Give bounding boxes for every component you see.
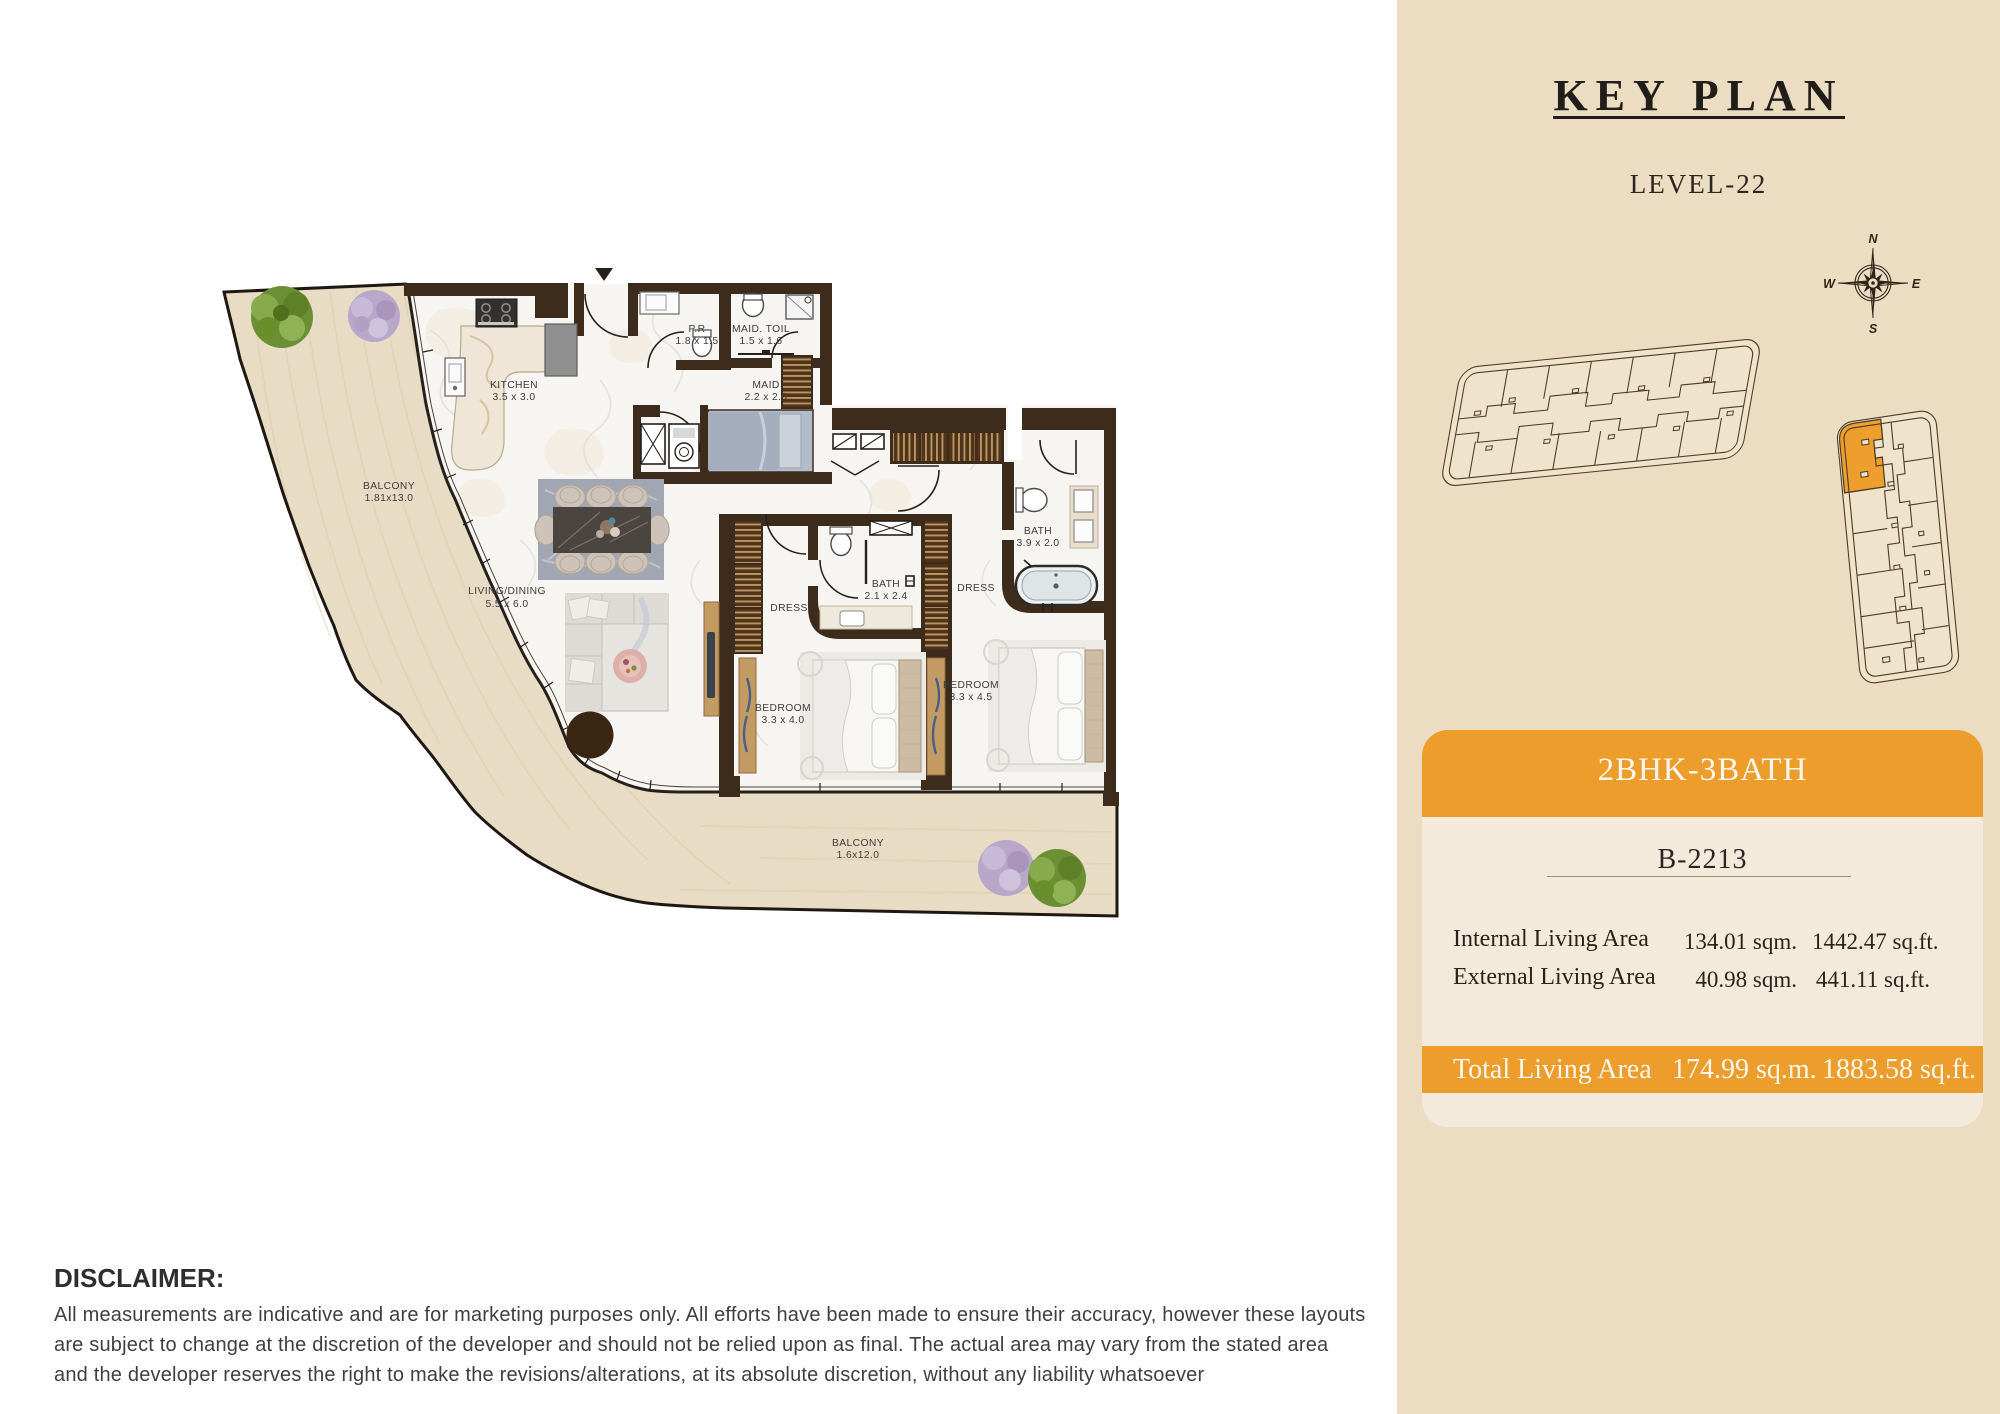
- svg-text:2.1 x 2.4: 2.1 x 2.4: [864, 591, 907, 602]
- svg-text:DRESS: DRESS: [957, 583, 994, 594]
- svg-text:2.2 x 2.0: 2.2 x 2.0: [744, 392, 787, 403]
- svg-text:1.5 x 1.6: 1.5 x 1.6: [739, 336, 782, 347]
- svg-text:3.9 x 2.0: 3.9 x 2.0: [1016, 538, 1059, 549]
- svg-text:5.5 x 6.0: 5.5 x 6.0: [485, 599, 528, 610]
- svg-text:BEDROOM: BEDROOM: [755, 703, 811, 714]
- svg-text:1.8 x 1.5: 1.8 x 1.5: [675, 336, 718, 347]
- svg-text:3.5 x 3.0: 3.5 x 3.0: [492, 392, 535, 403]
- svg-text:BALCONY: BALCONY: [363, 481, 415, 492]
- svg-text:BATH: BATH: [1024, 526, 1052, 537]
- svg-text:3.3 x 4.0: 3.3 x 4.0: [761, 715, 804, 726]
- svg-text:KITCHEN: KITCHEN: [490, 380, 538, 391]
- svg-text:BATH: BATH: [872, 579, 900, 590]
- svg-text:MAID: MAID: [752, 380, 779, 391]
- svg-text:P.R: P.R: [688, 324, 705, 335]
- svg-text:BALCONY: BALCONY: [832, 838, 884, 849]
- svg-text:1.6x12.0: 1.6x12.0: [837, 850, 880, 861]
- svg-text:3.3 x 4.5: 3.3 x 4.5: [949, 692, 992, 703]
- svg-text:1.81x13.0: 1.81x13.0: [365, 493, 414, 504]
- svg-text:BEDROOM: BEDROOM: [943, 680, 999, 691]
- svg-text:DRESS: DRESS: [770, 603, 807, 614]
- svg-text:LIVING/DINING: LIVING/DINING: [468, 586, 546, 597]
- svg-text:MAID. TOIL: MAID. TOIL: [732, 324, 790, 335]
